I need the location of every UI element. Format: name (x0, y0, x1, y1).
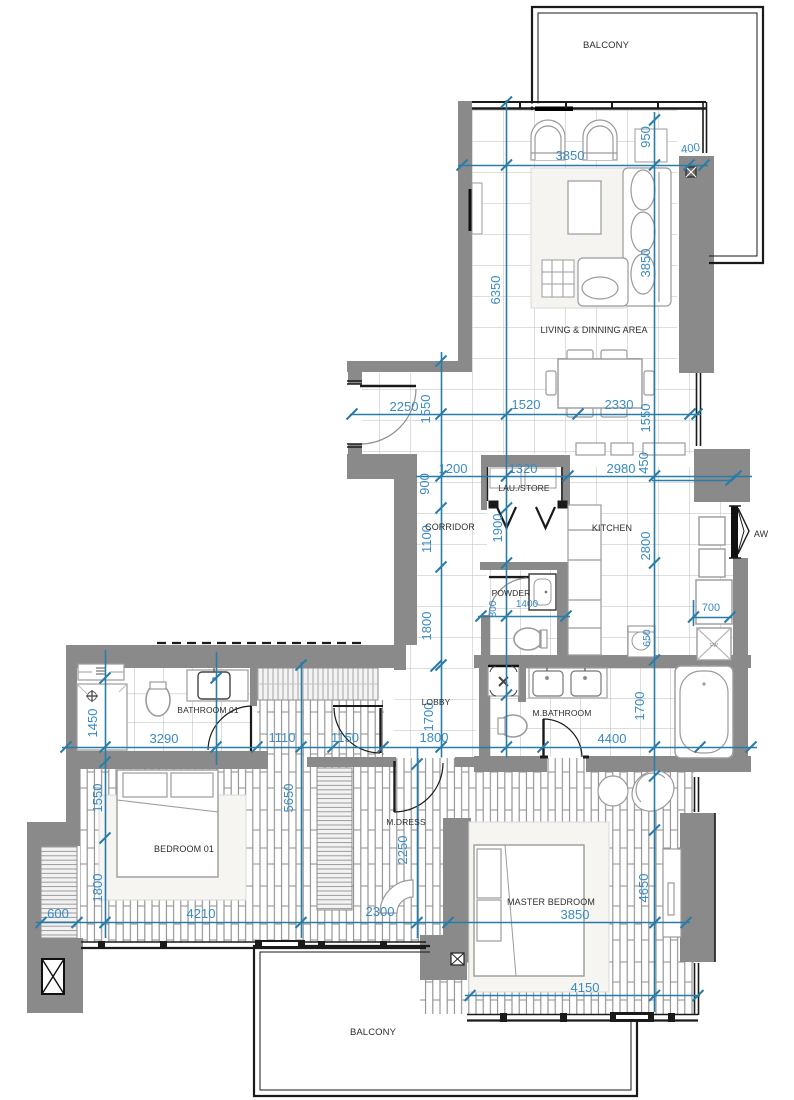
svg-text:4150: 4150 (571, 980, 600, 995)
svg-text:2250: 2250 (390, 399, 419, 414)
svg-text:KITCHEN: KITCHEN (592, 523, 632, 533)
svg-text:600: 600 (47, 906, 69, 921)
svg-text:6350: 6350 (488, 276, 503, 305)
svg-text:1550: 1550 (638, 404, 653, 433)
svg-text:POWDER: POWDER (492, 588, 531, 598)
svg-text:2980: 2980 (607, 461, 636, 476)
svg-text:950: 950 (638, 126, 653, 148)
svg-text:5650: 5650 (281, 784, 296, 813)
svg-text:2300: 2300 (366, 904, 395, 919)
svg-text:1550: 1550 (90, 784, 105, 813)
svg-text:1150: 1150 (331, 730, 359, 745)
svg-text:BATHROOM 01: BATHROOM 01 (177, 705, 239, 715)
svg-text:MASTER BEDROOM: MASTER BEDROOM (507, 897, 595, 907)
svg-text:3850: 3850 (556, 148, 585, 163)
svg-text:2330: 2330 (605, 397, 634, 412)
svg-text:2800: 2800 (638, 532, 653, 561)
svg-text:M.DRESS: M.DRESS (386, 817, 426, 827)
svg-text:BALCONY: BALCONY (350, 1027, 397, 1038)
svg-text:1800: 1800 (419, 612, 434, 641)
svg-text:450: 450 (636, 452, 651, 474)
svg-text:700: 700 (702, 602, 720, 614)
svg-text:1320: 1320 (509, 461, 538, 476)
svg-text:4400: 4400 (598, 731, 627, 746)
svg-text:M.BATHROOM: M.BATHROOM (533, 708, 592, 718)
svg-text:3290: 3290 (150, 731, 179, 746)
svg-text:FW: FW (710, 643, 718, 649)
svg-text:4650: 4650 (636, 874, 651, 903)
svg-text:800: 800 (488, 600, 499, 617)
svg-text:1800: 1800 (90, 874, 105, 903)
svg-text:900: 900 (417, 473, 432, 495)
svg-text:3850: 3850 (638, 249, 653, 278)
svg-text:1110: 1110 (269, 730, 296, 745)
svg-text:4210: 4210 (187, 906, 216, 921)
svg-text:LIVING & DINNING AREA: LIVING & DINNING AREA (540, 325, 647, 335)
svg-text:1400: 1400 (516, 599, 539, 610)
svg-text:LOBBY: LOBBY (422, 697, 451, 707)
svg-text:1450: 1450 (85, 709, 100, 738)
svg-text:1550: 1550 (418, 395, 433, 424)
svg-text:650: 650 (641, 629, 653, 647)
svg-text:1700: 1700 (632, 692, 647, 721)
svg-text:3850: 3850 (561, 907, 590, 922)
svg-text:LAU./STORE: LAU./STORE (498, 483, 550, 493)
svg-text:1900: 1900 (490, 514, 505, 543)
svg-text:CORRIDOR: CORRIDOR (425, 522, 475, 532)
svg-text:BEDROOM 01: BEDROOM 01 (154, 844, 214, 854)
svg-text:1200: 1200 (439, 461, 468, 476)
svg-text:BALCONY: BALCONY (583, 40, 630, 51)
svg-text:1520: 1520 (512, 397, 541, 412)
svg-text:2250: 2250 (395, 836, 410, 865)
svg-text:AW: AW (754, 529, 769, 539)
